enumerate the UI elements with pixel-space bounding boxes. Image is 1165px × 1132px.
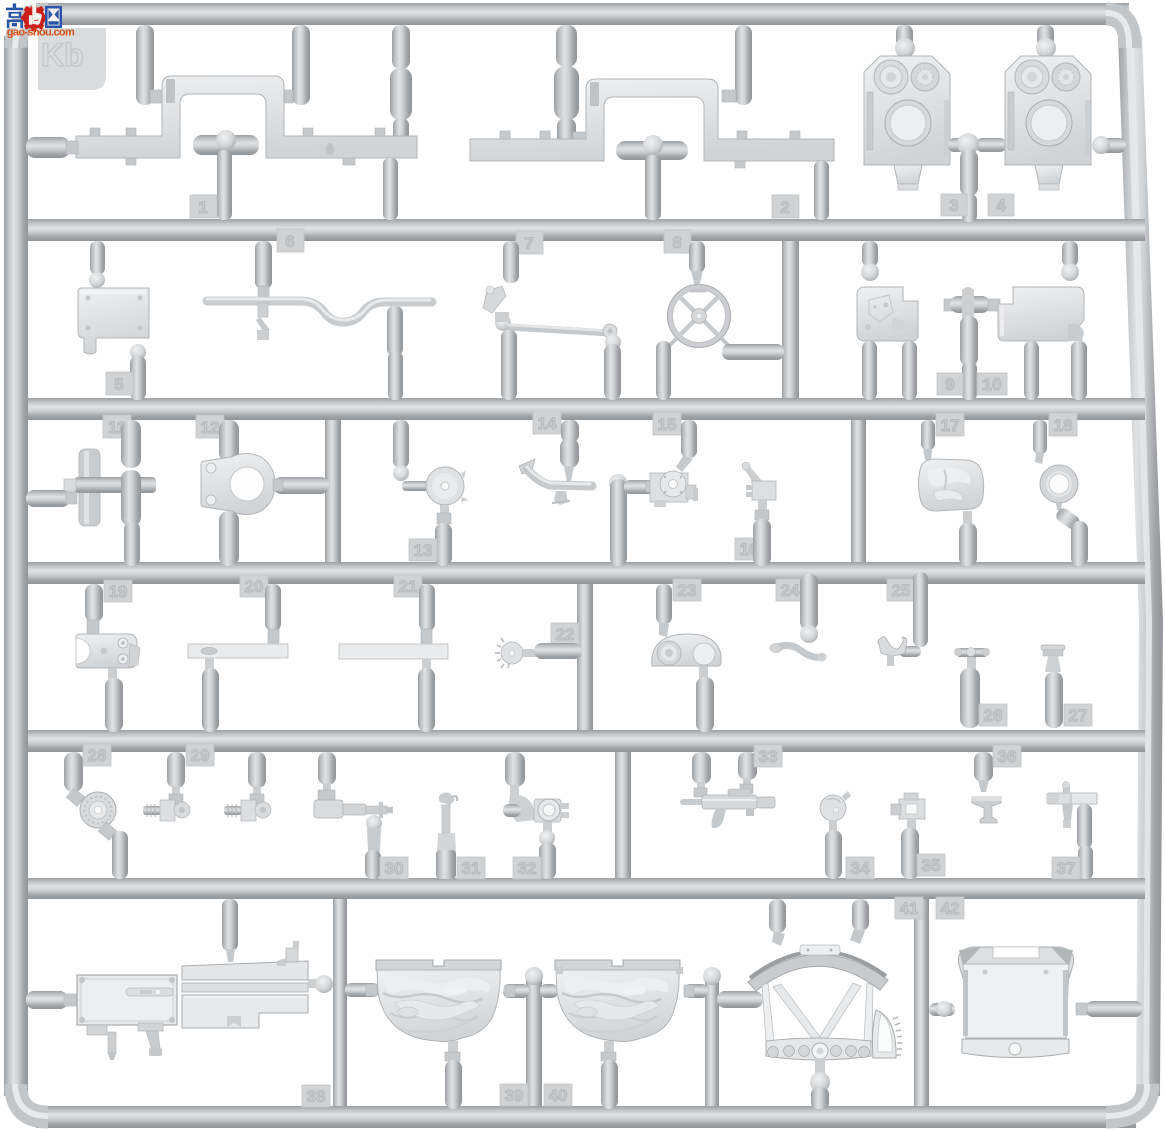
svg-text:32: 32: [518, 859, 537, 878]
svg-text:14: 14: [538, 414, 557, 433]
svg-text:30: 30: [385, 859, 404, 878]
svg-text:15: 15: [658, 415, 677, 434]
svg-text:33: 33: [759, 747, 778, 766]
svg-text:22: 22: [556, 625, 575, 644]
svg-text:19: 19: [109, 582, 128, 601]
svg-text:10: 10: [983, 375, 1002, 394]
svg-text:37: 37: [1057, 859, 1076, 878]
svg-text:26: 26: [984, 706, 1003, 725]
svg-text:5: 5: [114, 375, 123, 394]
svg-text:41: 41: [900, 899, 919, 918]
svg-text:21: 21: [399, 577, 418, 596]
svg-text:24: 24: [781, 581, 800, 600]
svg-text:40: 40: [549, 1086, 568, 1105]
svg-text:Kb: Kb: [41, 37, 84, 73]
svg-text:39: 39: [505, 1086, 524, 1105]
svg-text:8: 8: [672, 233, 681, 252]
svg-text:4: 4: [996, 196, 1006, 215]
svg-text:31: 31: [462, 859, 481, 878]
svg-text:3: 3: [949, 196, 958, 215]
svg-text:13: 13: [414, 541, 433, 560]
svg-text:9: 9: [945, 375, 954, 394]
svg-text:18: 18: [1054, 416, 1073, 435]
svg-text:27: 27: [1069, 706, 1088, 725]
svg-text:34: 34: [851, 859, 870, 878]
svg-text:29: 29: [191, 746, 210, 765]
svg-text:38: 38: [307, 1087, 326, 1106]
svg-text:42: 42: [941, 899, 960, 918]
svg-text:28: 28: [88, 746, 107, 765]
svg-text:6: 6: [285, 232, 294, 251]
svg-text:17: 17: [941, 416, 960, 435]
svg-text:25: 25: [892, 581, 911, 600]
svg-text:2: 2: [780, 198, 789, 217]
svg-text:23: 23: [678, 581, 697, 600]
svg-text:20: 20: [245, 577, 264, 596]
svg-text:gao-shou.com: gao-shou.com: [7, 27, 75, 39]
svg-text:7: 7: [524, 234, 533, 253]
svg-text:12: 12: [201, 418, 220, 437]
svg-text:36: 36: [998, 747, 1017, 766]
svg-text:35: 35: [922, 856, 941, 875]
svg-text:1: 1: [198, 198, 207, 217]
